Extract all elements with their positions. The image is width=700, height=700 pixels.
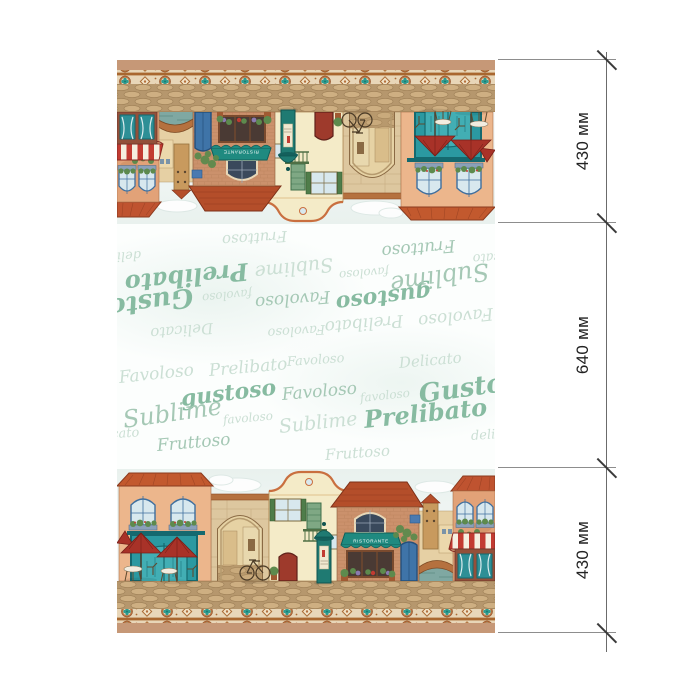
word-pattern-inverted: FavolosoPrelibatoFavolosoDelicatogustoso… (117, 223, 495, 345)
dimension-line-vertical (606, 52, 607, 652)
dimension-label-bottom: 430 мм (573, 510, 593, 590)
pattern-word: Favoloso (254, 287, 330, 310)
pattern-word: Fruttoso (156, 432, 231, 455)
pattern-word: delicato (117, 426, 140, 443)
pattern-word: Prelibato (324, 311, 404, 335)
pattern-word: Favoloso (417, 304, 494, 329)
pattern-word: Sublime (254, 254, 334, 281)
word-pattern-upright: FavolosoPrelibatoFavolosoDelicatogustoso… (117, 346, 495, 468)
pattern-word: Delicato (398, 351, 462, 371)
pattern-word: favoloso (222, 410, 273, 426)
product-dimension-image: { "dimensions": { "top": "430 мм", "midd… (0, 0, 700, 700)
extension-line-2 (498, 222, 616, 223)
pattern-word: delicato (472, 248, 495, 265)
fabric-panel-image: FavolosoPrelibatoFavolosoDelicatogustoso… (117, 60, 495, 633)
pattern-word: Prelibato (208, 356, 288, 380)
pattern-word: delicato (471, 426, 495, 443)
pattern-word: Favoloso (118, 362, 195, 387)
street-scene-bottom (117, 469, 495, 633)
pattern-word: Favoloso (287, 352, 345, 369)
pattern-word: Fruttoso (324, 443, 390, 463)
extension-line-4 (498, 632, 616, 633)
pattern-word: Favoloso (281, 380, 357, 403)
dimension-label-top: 430 мм (573, 101, 593, 181)
pattern-word: Fruttoso (381, 236, 456, 259)
pattern-word: Delicato (150, 320, 214, 340)
pattern-word: Sublime (278, 410, 358, 437)
dimension-label-middle: 640 мм (573, 305, 593, 385)
extension-line-3 (498, 467, 616, 468)
street-scene-top-inverted (117, 60, 495, 224)
pattern-word: Favoloso (267, 322, 325, 339)
pattern-word: favoloso (339, 265, 390, 281)
pattern-word: delicato (117, 248, 141, 265)
extension-line-1 (498, 59, 616, 60)
pattern-word: Fruttoso (222, 228, 288, 248)
